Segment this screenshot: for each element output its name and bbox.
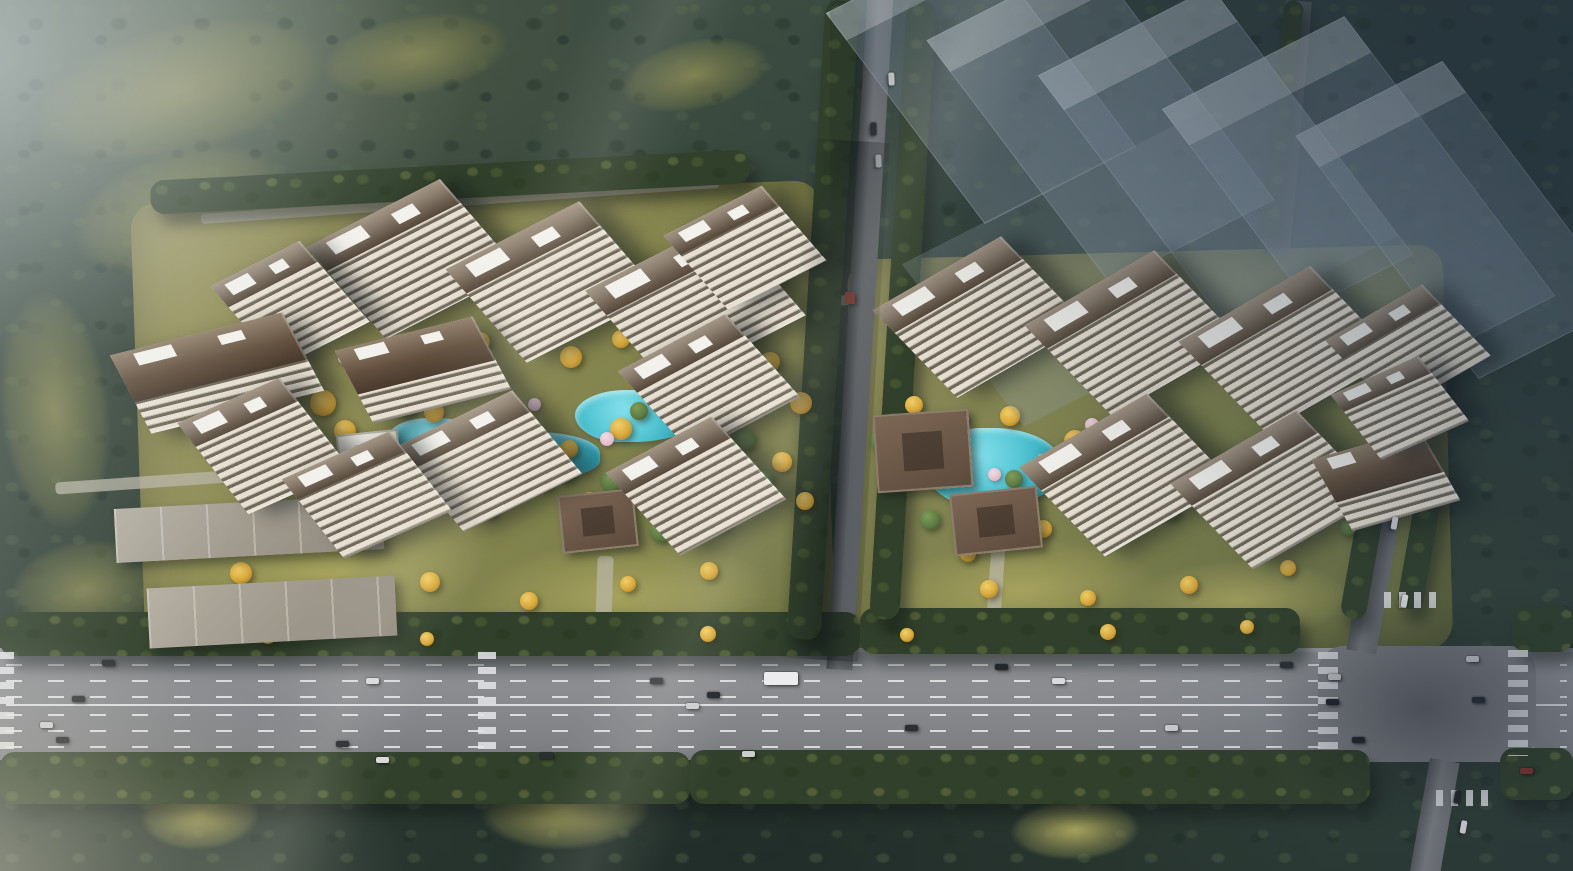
car [1165,725,1178,731]
car [742,751,755,757]
car [366,678,379,684]
car [707,692,720,698]
car [72,696,85,702]
intersection-shadow [1240,600,1573,840]
car [540,753,553,759]
car [40,722,53,728]
car [56,737,69,743]
car [905,725,918,731]
car [376,757,389,763]
car [336,741,349,747]
car [995,664,1008,670]
car [1052,678,1065,684]
scene [0,0,1573,871]
northeast-shadow [830,0,1573,560]
car [764,672,798,685]
car [102,660,115,666]
car [686,703,699,709]
car [650,678,663,684]
